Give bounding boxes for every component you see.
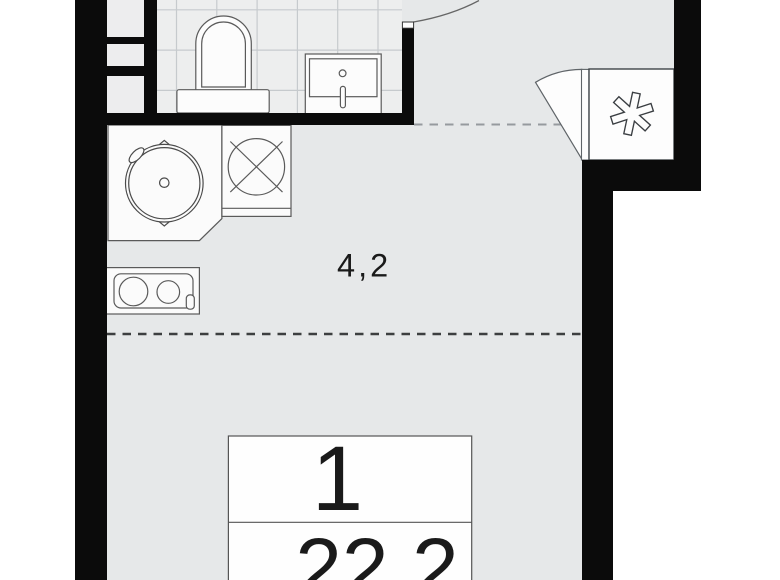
- svg-text:4,2: 4,2: [337, 248, 391, 284]
- svg-text:22,2: 22,2: [295, 521, 459, 580]
- svg-text:1: 1: [312, 428, 363, 530]
